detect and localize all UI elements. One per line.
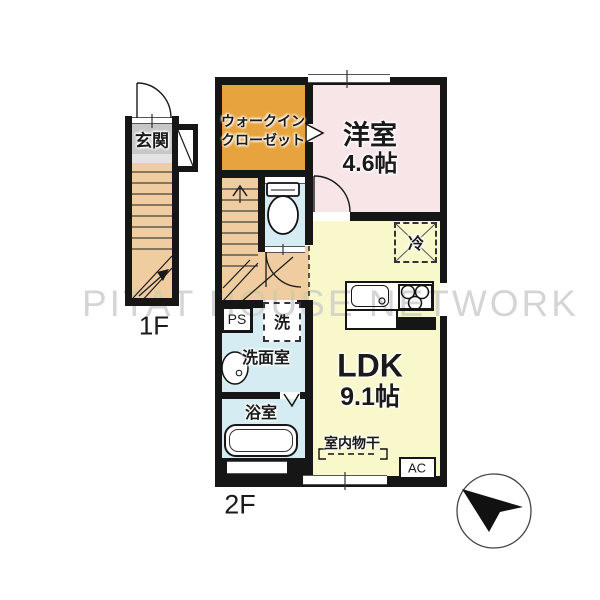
wall-segment bbox=[305, 300, 313, 477]
wall-segment bbox=[305, 212, 313, 221]
wall-segment bbox=[125, 116, 132, 306]
toilet-floor bbox=[265, 178, 305, 248]
ac-label: AC bbox=[408, 461, 426, 476]
stairs-1f-floor bbox=[132, 163, 172, 298]
floor-2f-label: 2F bbox=[224, 490, 256, 521]
genkan-label: 玄関 bbox=[135, 127, 169, 152]
western-room-size: 4.6帖 bbox=[343, 144, 398, 178]
bathtub-inner-line bbox=[229, 429, 293, 452]
wic-label-line2: クローゼット bbox=[221, 130, 305, 150]
genkan-step bbox=[132, 154, 172, 163]
window-top bbox=[308, 74, 390, 83]
bathtub bbox=[224, 424, 298, 457]
floor-plan: 玄関 ウォークイン クローゼット 洋室 4.6帖 LDK 9.1帖 冷 洗 PS… bbox=[0, 0, 600, 600]
stairs-2f-floor bbox=[222, 178, 258, 300]
bathroom-label: 浴室 bbox=[245, 399, 277, 423]
window-ldk-bottom bbox=[303, 475, 387, 485]
wall-segment bbox=[215, 392, 280, 399]
wall-segment bbox=[258, 178, 265, 252]
window-bath-bottom bbox=[227, 461, 287, 474]
alcove-interior bbox=[178, 130, 193, 166]
toilet-top-line bbox=[265, 177, 305, 184]
washroom-label: 洗面室 bbox=[242, 344, 290, 368]
wall-segment bbox=[350, 212, 447, 221]
wall-segment bbox=[305, 77, 313, 124]
bath-door-gap bbox=[280, 392, 300, 399]
fridge-label: 冷 bbox=[408, 230, 424, 254]
wall-segment bbox=[440, 77, 447, 487]
wall-segment bbox=[300, 392, 312, 399]
entrance-threshold bbox=[132, 117, 172, 124]
wall-segment bbox=[305, 142, 313, 245]
ldk-size: 9.1帖 bbox=[340, 377, 400, 413]
watermark-text: PITAT HOUSE NETWORK bbox=[82, 283, 579, 325]
entrance-door-swing-icon bbox=[137, 83, 171, 118]
toilet-threshold bbox=[265, 246, 305, 253]
indoor-drying-label: 室内物干 bbox=[324, 433, 380, 453]
wic-label-line1: ウォークイン bbox=[221, 111, 305, 131]
compass-north-icon bbox=[457, 474, 531, 548]
